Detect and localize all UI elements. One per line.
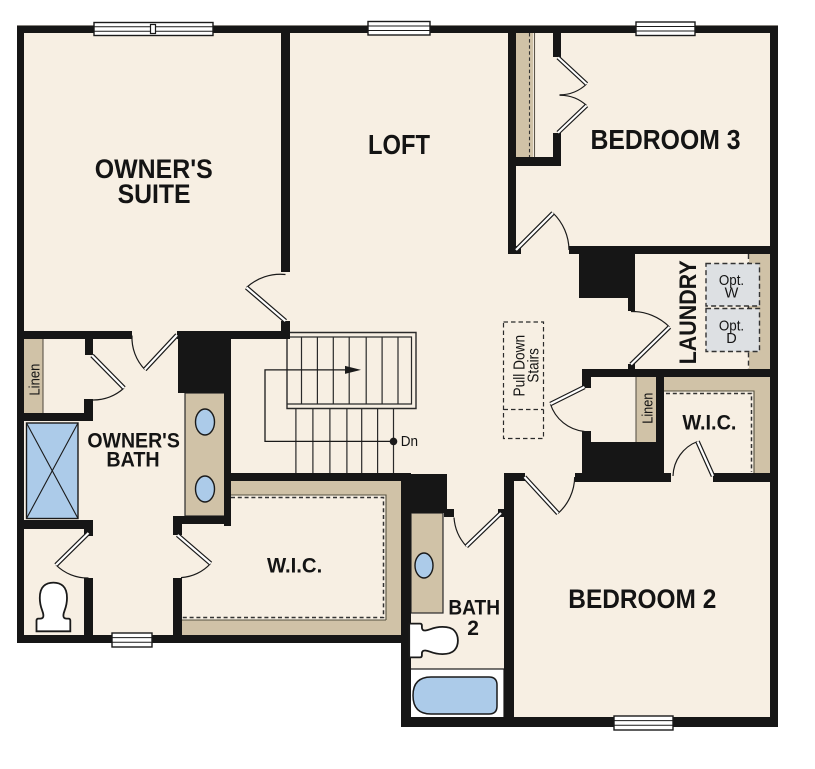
svg-text:BEDROOM 2: BEDROOM 2: [568, 584, 716, 614]
svg-text:Stairs: Stairs: [526, 348, 543, 383]
svg-text:Linen: Linen: [641, 393, 657, 424]
svg-text:W.I.C.: W.I.C.: [682, 412, 736, 435]
svg-text:LAUNDRY: LAUNDRY: [675, 260, 702, 364]
svg-text:2: 2: [467, 617, 479, 640]
svg-text:D: D: [726, 331, 736, 347]
svg-text:Dn: Dn: [401, 433, 418, 450]
svg-text:BATH: BATH: [106, 449, 159, 472]
svg-text:LOFT: LOFT: [368, 129, 430, 160]
svg-text:SUITE: SUITE: [118, 179, 191, 209]
svg-text:BEDROOM 3: BEDROOM 3: [591, 124, 741, 155]
svg-text:W.I.C.: W.I.C.: [267, 555, 322, 578]
svg-text:W: W: [725, 285, 739, 301]
svg-text:Linen: Linen: [27, 364, 44, 396]
